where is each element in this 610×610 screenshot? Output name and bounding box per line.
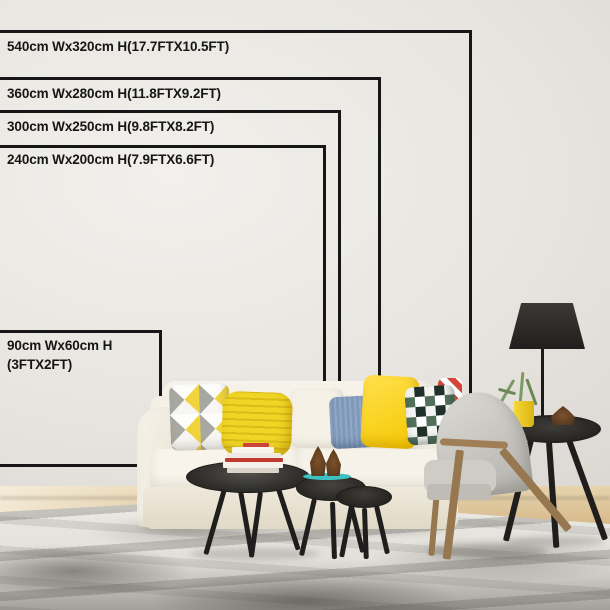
floor-lamp-pole: [541, 349, 544, 419]
teal-tray: [303, 473, 351, 480]
book: [227, 468, 279, 473]
coffee-table-small: [336, 486, 392, 508]
size-label-240x200: 240cm Wx200cm H(7.9FTX6.6FT): [7, 150, 214, 169]
size-label-90x60-line2: (3FTX2FT): [7, 355, 72, 374]
size-label-540x320: 540cm Wx320cm H(17.7FTX10.5FT): [7, 37, 229, 56]
floor-lamp-shade: [509, 303, 585, 349]
size-label-90x60-line1: 90cm Wx60cm H: [7, 336, 112, 355]
size-label-90x60: 90cm Wx60cm H (3FTX2FT): [7, 336, 157, 355]
product-size-chart-image: 540cm Wx320cm H(17.7FTX10.5FT) 360cm Wx2…: [0, 0, 610, 610]
size-label-360x280: 360cm Wx280cm H(11.8FTX9.2FT): [7, 84, 221, 103]
size-label-300x250: 300cm Wx250cm H(9.8FTX8.2FT): [7, 117, 214, 136]
